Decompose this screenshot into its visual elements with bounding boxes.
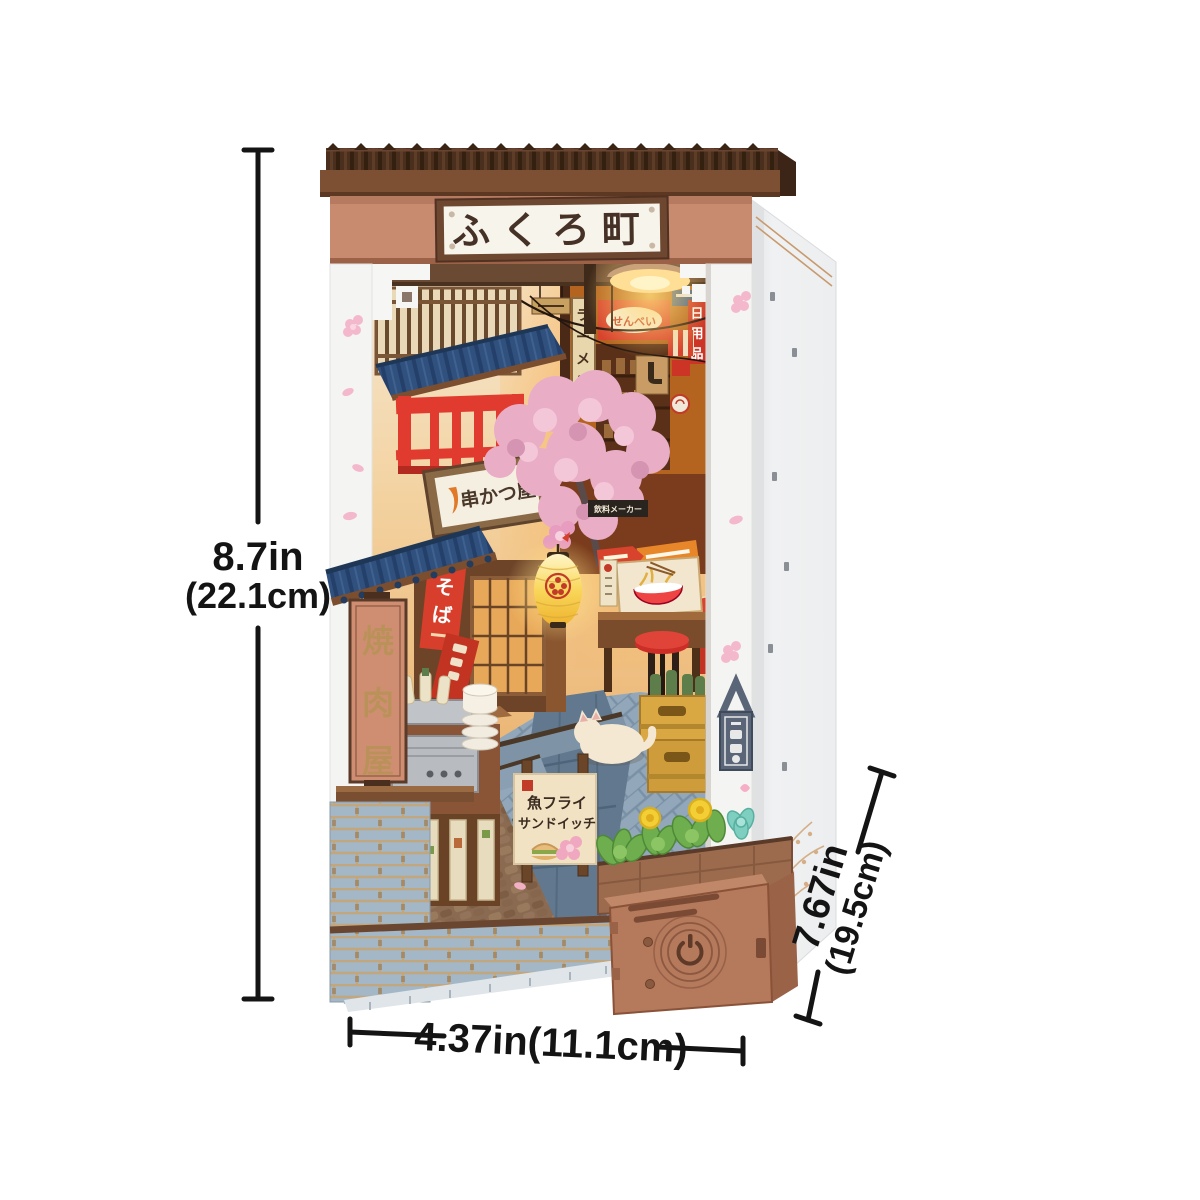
sandwich-illustration <box>531 844 559 860</box>
height-label-cm: (22.1cm) <box>185 575 331 616</box>
roof-right-end <box>778 150 796 196</box>
sandwich-text: サンドイッチ <box>518 816 596 831</box>
fish-fry-text: 魚フライ <box>527 794 587 812</box>
marquee-text: ふくろ町 <box>452 209 653 254</box>
ramen-bowl-sign <box>616 557 702 617</box>
height-label-in: 8.7in <box>212 535 303 579</box>
yakiniku-char-1: 焼 <box>362 623 394 659</box>
power-box-latch <box>756 938 766 958</box>
soba-char-1: そ <box>434 576 456 600</box>
boot-poster <box>636 356 668 394</box>
round-logo <box>671 395 689 413</box>
yakiniku-vertical-sign: 焼 肉 屋 <box>350 592 406 788</box>
yakiniku-char-2: 肉 <box>362 685 394 721</box>
svg-text:飲料メーカー: 飲料メーカー <box>593 504 642 514</box>
facade: ふくろ町 <box>330 196 752 266</box>
roof <box>320 143 796 197</box>
product-dimension-image: ふくろ町 <box>0 0 1200 1200</box>
book-nook-illustration: ふくろ町 <box>0 0 1200 1200</box>
small-red-sign <box>672 360 690 376</box>
beverage-maker-sign: 飲料メーカー <box>588 500 648 517</box>
power-box-front <box>610 884 772 1014</box>
sandwich-board-sign: 魚フライ サンドイッチ <box>514 754 596 882</box>
ramen-char-3: メ <box>576 351 590 367</box>
menu-card <box>600 560 617 606</box>
soba-char-2: ば <box>431 603 453 628</box>
width-label: 4.37in(11.1cm) <box>413 1015 688 1071</box>
stacked-cups <box>462 684 498 750</box>
marquee-sign: ふくろ町 <box>436 196 669 261</box>
yakiniku-char-3: 屋 <box>362 743 394 779</box>
